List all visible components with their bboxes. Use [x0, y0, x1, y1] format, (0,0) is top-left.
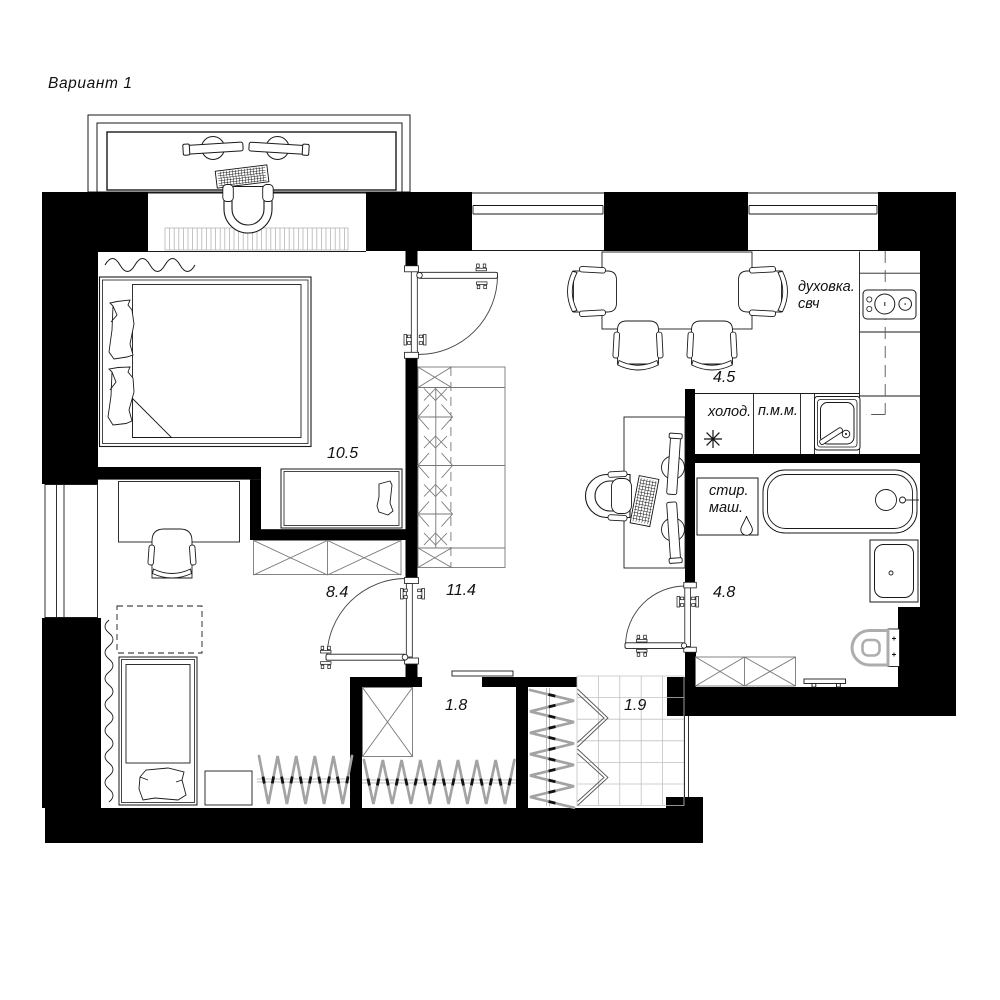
svg-text:духовка.: духовка. [798, 279, 855, 295]
svg-text:11.4: 11.4 [446, 582, 476, 599]
svg-text:4.5: 4.5 [713, 369, 735, 386]
svg-text:маш.: маш. [709, 500, 743, 516]
svg-text:1.8: 1.8 [445, 697, 467, 714]
svg-text:свч: свч [798, 296, 820, 312]
svg-text:Вариант 1: Вариант 1 [48, 75, 133, 92]
svg-text:1.9: 1.9 [624, 697, 646, 714]
svg-text:холод.: холод. [707, 404, 751, 420]
svg-text:10.5: 10.5 [327, 445, 358, 462]
svg-text:п.м.м.: п.м.м. [758, 403, 798, 419]
svg-text:стир.: стир. [709, 483, 749, 499]
svg-text:8.4: 8.4 [326, 584, 348, 601]
svg-text:4.8: 4.8 [713, 584, 735, 601]
